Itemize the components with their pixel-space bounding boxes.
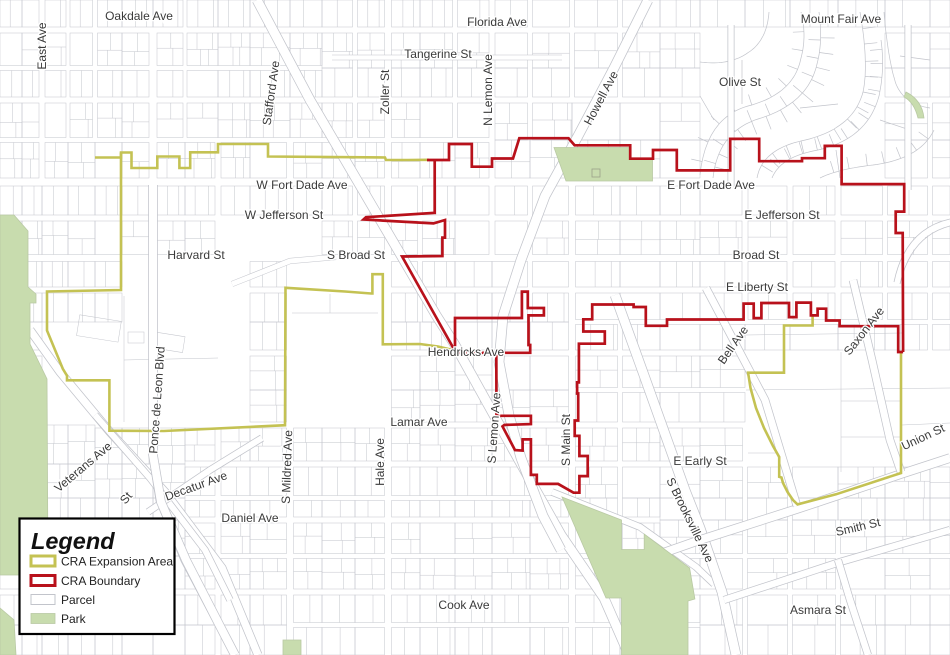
svg-text:Lamar Ave: Lamar Ave	[390, 415, 447, 429]
svg-text:Hale Ave: Hale Ave	[373, 438, 387, 486]
svg-text:Mount Fair Ave: Mount Fair Ave	[801, 12, 882, 26]
svg-text:S Mildred Ave: S Mildred Ave	[279, 430, 296, 505]
svg-text:Parcel: Parcel	[61, 593, 95, 607]
svg-text:Olive St: Olive St	[719, 75, 762, 89]
svg-text:CRA Expansion Area: CRA Expansion Area	[61, 555, 173, 569]
svg-text:W Fort Dade Ave: W Fort Dade Ave	[256, 178, 347, 192]
svg-text:Legend: Legend	[31, 528, 115, 554]
svg-text:East Ave: East Ave	[35, 22, 49, 69]
svg-text:CRA Boundary: CRA Boundary	[61, 574, 140, 588]
svg-text:W Jefferson St: W Jefferson St	[245, 208, 324, 222]
svg-text:S Main St: S Main St	[559, 413, 573, 466]
svg-text:Zoller St: Zoller St	[378, 69, 392, 114]
svg-text:Broad St: Broad St	[733, 248, 780, 262]
svg-text:E Liberty St: E Liberty St	[726, 280, 789, 294]
svg-text:Asmara St: Asmara St	[790, 603, 847, 617]
svg-text:Park: Park	[61, 612, 87, 626]
svg-text:S Broad St: S Broad St	[327, 248, 386, 262]
svg-text:N Lemon Ave: N Lemon Ave	[481, 54, 495, 126]
svg-text:Cook Ave: Cook Ave	[438, 598, 489, 612]
svg-text:E Jefferson St: E Jefferson St	[744, 208, 820, 222]
svg-text:Tangerine St: Tangerine St	[404, 47, 472, 61]
svg-text:Hendricks Ave: Hendricks Ave	[428, 345, 505, 359]
svg-text:Florida Ave: Florida Ave	[467, 15, 527, 29]
svg-text:Daniel Ave: Daniel Ave	[221, 511, 278, 525]
svg-text:E Fort Dade Ave: E Fort Dade Ave	[667, 178, 755, 192]
svg-text:Oakdale Ave: Oakdale Ave	[105, 9, 173, 23]
svg-text:Harvard St: Harvard St	[167, 248, 225, 262]
svg-text:E Early St: E Early St	[673, 454, 727, 468]
